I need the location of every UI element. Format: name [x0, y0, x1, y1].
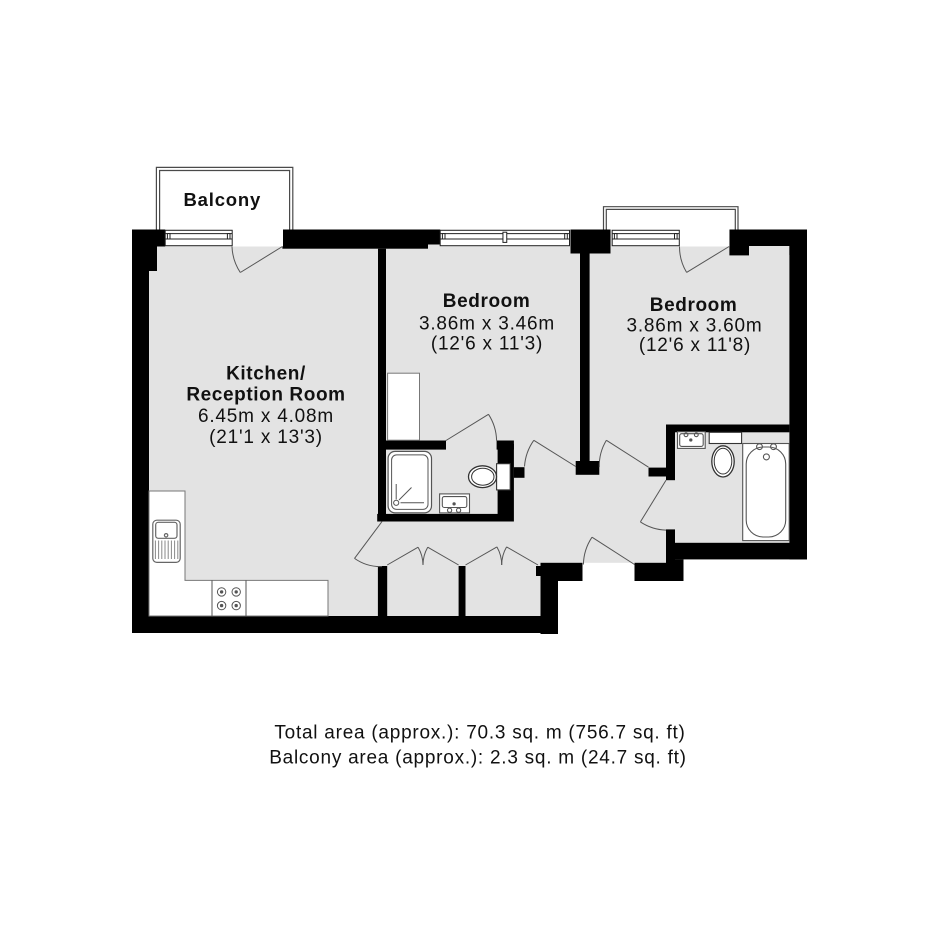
- svg-text:(12'6 x 11'3): (12'6 x 11'3): [431, 334, 543, 355]
- svg-text:Reception Room: Reception Room: [186, 384, 345, 405]
- svg-text:Balcony area (approx.): 2.3 sq: Balcony area (approx.): 2.3 sq. m (24.7 …: [269, 748, 687, 769]
- svg-text:Bedroom: Bedroom: [443, 291, 531, 312]
- svg-text:Bedroom: Bedroom: [650, 295, 738, 316]
- svg-text:3.86m x 3.60m: 3.86m x 3.60m: [626, 315, 762, 336]
- svg-text:Total area (approx.): 70.3 sq.: Total area (approx.): 70.3 sq. m (756.7 …: [274, 723, 685, 744]
- svg-text:3.86m x 3.46m: 3.86m x 3.46m: [419, 313, 555, 334]
- svg-text:Kitchen/: Kitchen/: [226, 363, 306, 384]
- svg-text:(21'1 x 13'3): (21'1 x 13'3): [209, 427, 323, 448]
- svg-text:6.45m x 4.08m: 6.45m x 4.08m: [198, 406, 334, 427]
- svg-text:(12'6 x 11'8): (12'6 x 11'8): [639, 335, 751, 356]
- svg-text:Balcony: Balcony: [184, 189, 262, 210]
